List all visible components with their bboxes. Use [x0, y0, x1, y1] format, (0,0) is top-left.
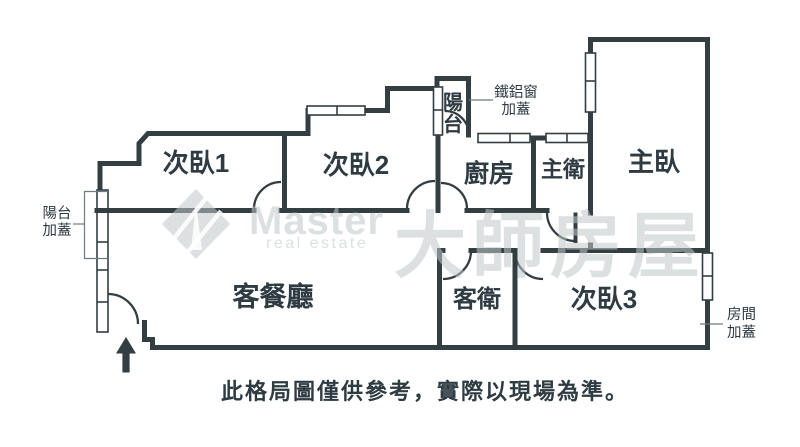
disclaimer-text: 此格局圖僅供參考，實際以現場為準。	[221, 379, 629, 404]
entrance-door-arc	[108, 294, 138, 324]
room-label-living-dining: 客餐廳	[233, 281, 314, 312]
room-label-small-balcony-char1: 陽	[443, 91, 463, 114]
annotation-window-cover-line1: 鐵鋁窗	[494, 83, 538, 101]
room-label-small-balcony-char2: 台	[443, 112, 463, 136]
room-label-bedroom3: 次臥3	[571, 284, 637, 314]
watermark-group: Master real estate 大師房屋	[162, 189, 706, 287]
annotation-window-cover-line2: 加蓋	[502, 101, 531, 118]
entrance-arrow	[116, 337, 136, 373]
room-label-master-bedroom: 主臥	[628, 147, 681, 177]
room-label-kitchen: 廚房	[464, 159, 514, 188]
annotation-room-cover-line2: 加蓋	[727, 324, 756, 341]
room-label-master-bath: 主衛	[541, 157, 585, 182]
bedroom2-top-window	[307, 106, 365, 115]
small-balcony-window	[434, 87, 443, 135]
kitchen-top-window	[478, 134, 530, 143]
entrance-arrow-shaft	[122, 353, 129, 373]
room-label-bedroom2: 次臥2	[323, 150, 389, 180]
entrance-arrow-head	[116, 337, 136, 354]
floor-plan-svg: Master real estate 大師房屋 次臥1 次臥2 廚房 主衛 主臥…	[0, 0, 800, 447]
annotation-room-cover-line1: 房間	[727, 306, 756, 323]
master-bedroom-window	[586, 53, 596, 112]
watermark-tagline-text: real estate	[266, 235, 368, 252]
room-label-bedroom1: 次臥1	[163, 148, 229, 178]
room-label-guest-bath: 客衛	[453, 285, 501, 313]
watermark-cjk-text: 大師房屋	[394, 207, 706, 287]
annotation-left-balcony-line2: 加蓋	[43, 222, 72, 239]
floor-plan-image: Master real estate 大師房屋 次臥1 次臥2 廚房 主衛 主臥…	[0, 0, 800, 447]
annotation-left-balcony-line1: 陽台	[43, 205, 72, 222]
bedroom2-door-arc	[407, 181, 435, 209]
